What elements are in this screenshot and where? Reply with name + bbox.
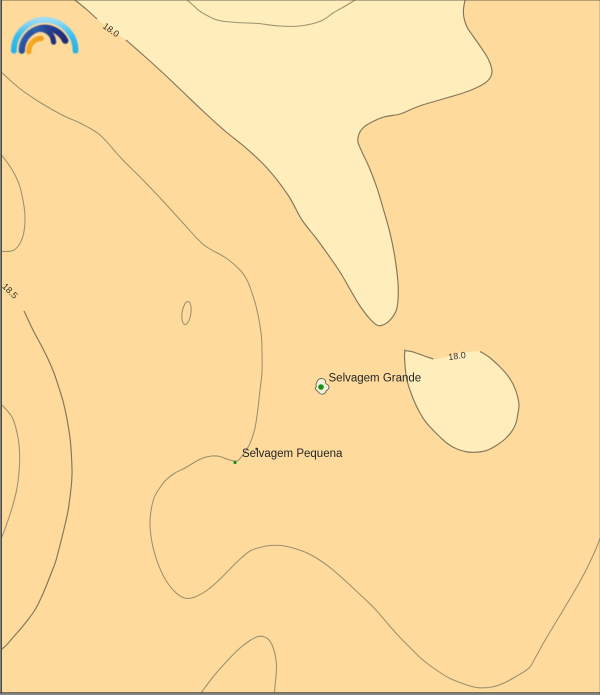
svg-text:Selvagem Pequena: Selvagem Pequena xyxy=(242,448,343,460)
svg-text:Selvagem Grande: Selvagem Grande xyxy=(329,373,422,385)
